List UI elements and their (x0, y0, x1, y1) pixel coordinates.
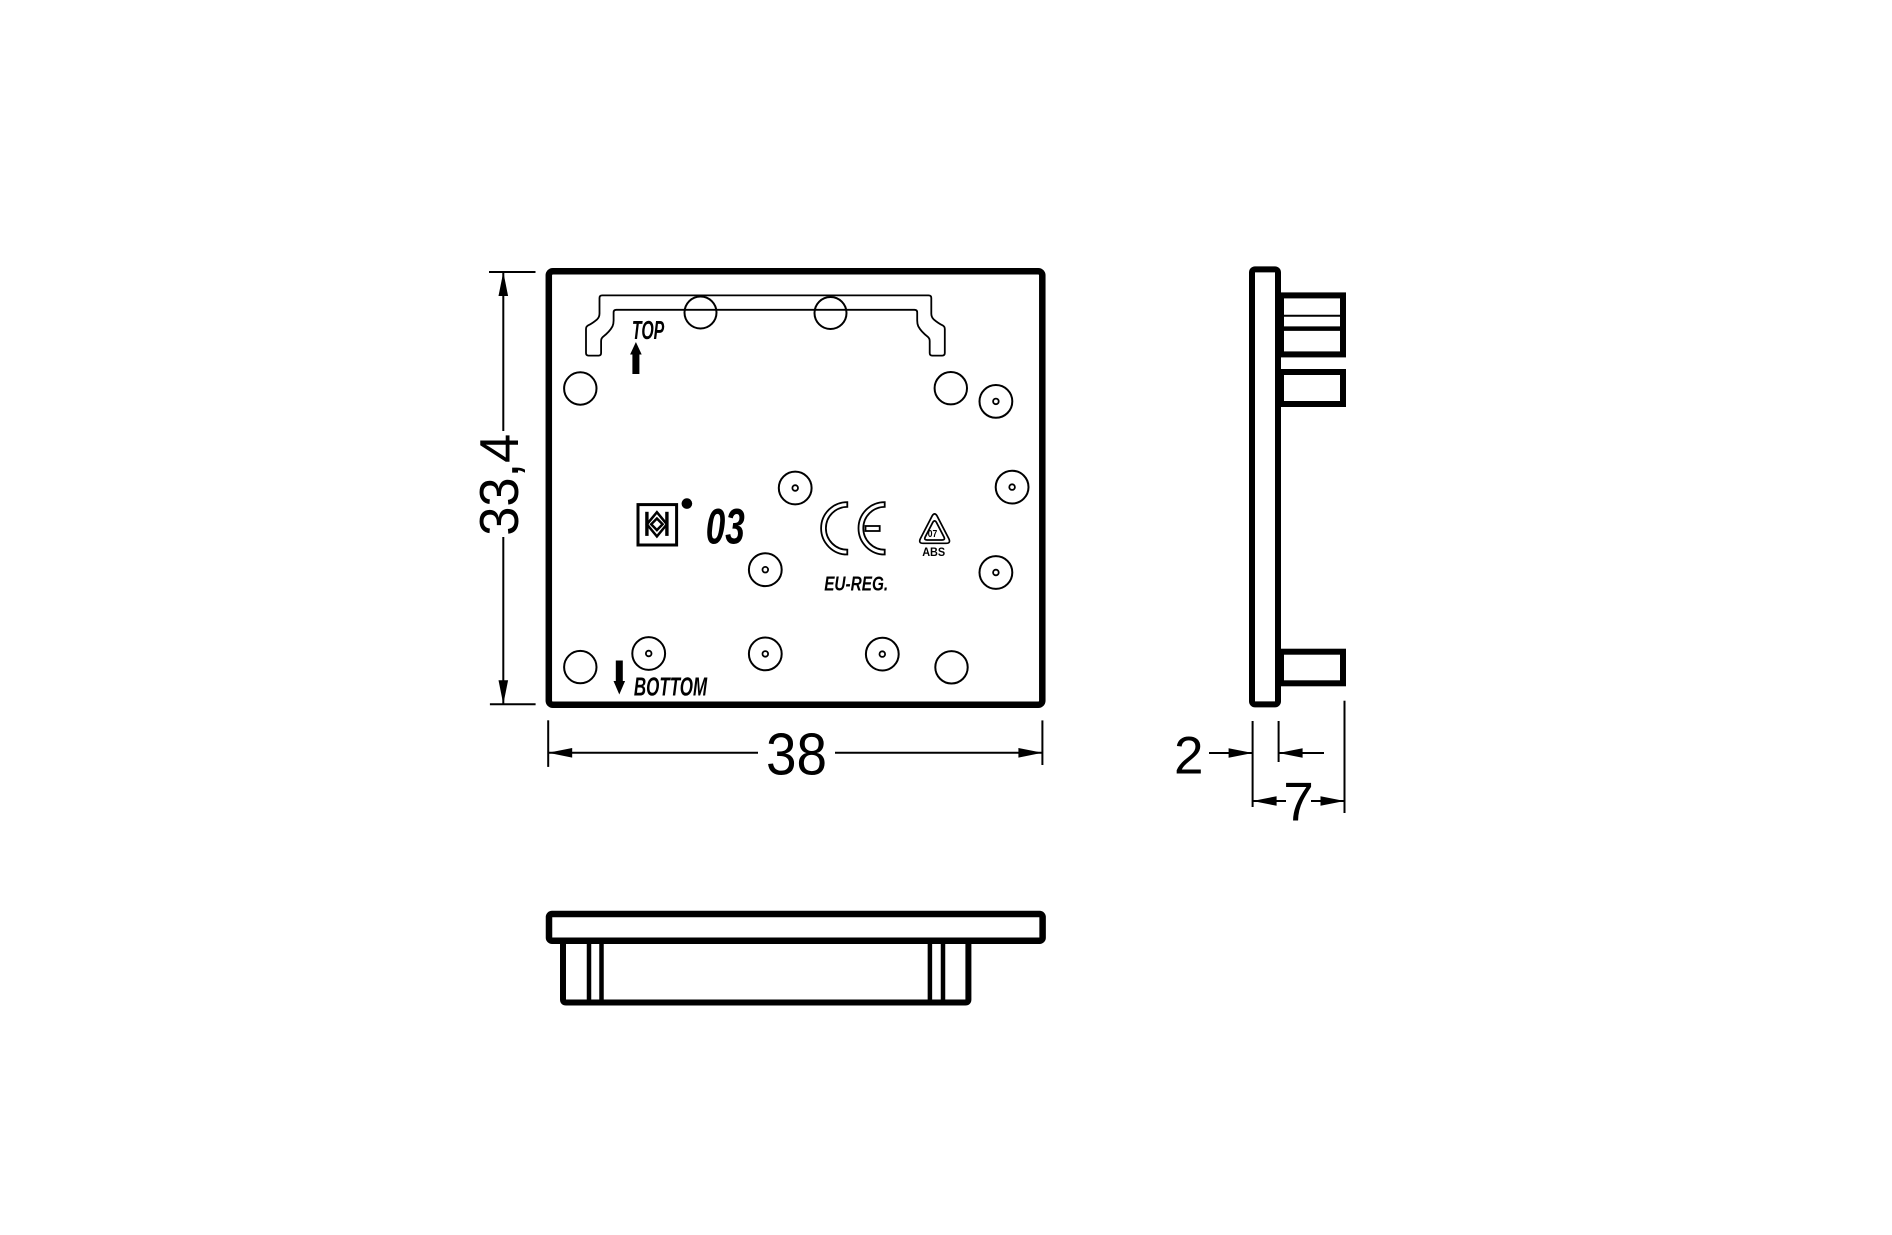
svg-text:38: 38 (766, 721, 827, 787)
svg-text:R: R (684, 499, 690, 508)
svg-text:ABS: ABS (922, 545, 945, 559)
svg-text:07: 07 (928, 528, 938, 540)
svg-text:EU-REG.: EU-REG. (824, 574, 888, 596)
svg-text:BOTTOM: BOTTOM (634, 672, 708, 702)
svg-text:2: 2 (1174, 727, 1203, 786)
svg-text:TOP: TOP (632, 315, 665, 345)
svg-text:33,4: 33,4 (468, 434, 530, 536)
svg-text:03: 03 (706, 498, 745, 554)
svg-text:7: 7 (1283, 771, 1314, 833)
